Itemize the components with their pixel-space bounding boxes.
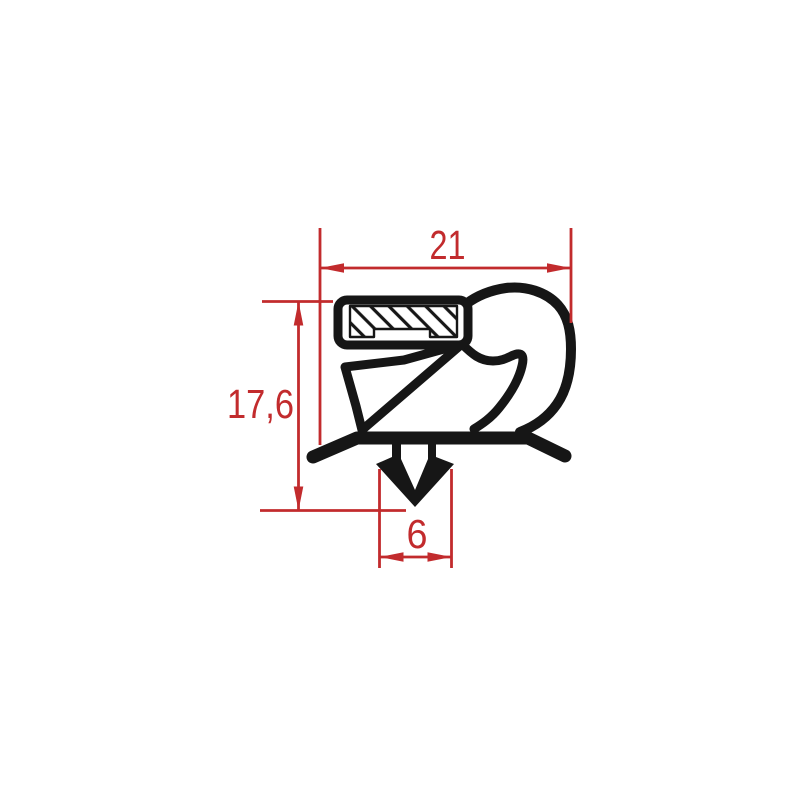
arrowhead-down-icon <box>294 487 304 511</box>
arrowhead-right-icon <box>428 552 452 562</box>
profile <box>313 287 571 507</box>
gasket-technical-drawing: 21 17,6 6 <box>0 0 800 800</box>
dimension-arrows-and-label: 6 <box>380 511 452 562</box>
arrowhead-up-icon <box>294 302 304 326</box>
base-rail <box>313 438 565 457</box>
dimension-bottom-width: 6 <box>380 469 452 568</box>
dimension-label-left-height: 17,6 <box>227 381 294 427</box>
dimension-label-top-width: 21 <box>430 222 466 268</box>
web-curve <box>462 344 523 429</box>
arrowhead-right-icon <box>547 263 571 273</box>
arrowhead-left-icon <box>380 552 404 562</box>
dimension-arrows-and-label: 21 <box>320 222 571 273</box>
arrowhead-left-icon <box>320 263 344 273</box>
dimension-label-bottom-width: 6 <box>407 511 428 557</box>
web-left <box>345 344 462 430</box>
dimension-arrows-and-label: 17,6 <box>227 302 303 511</box>
anchor-barb <box>376 436 454 507</box>
